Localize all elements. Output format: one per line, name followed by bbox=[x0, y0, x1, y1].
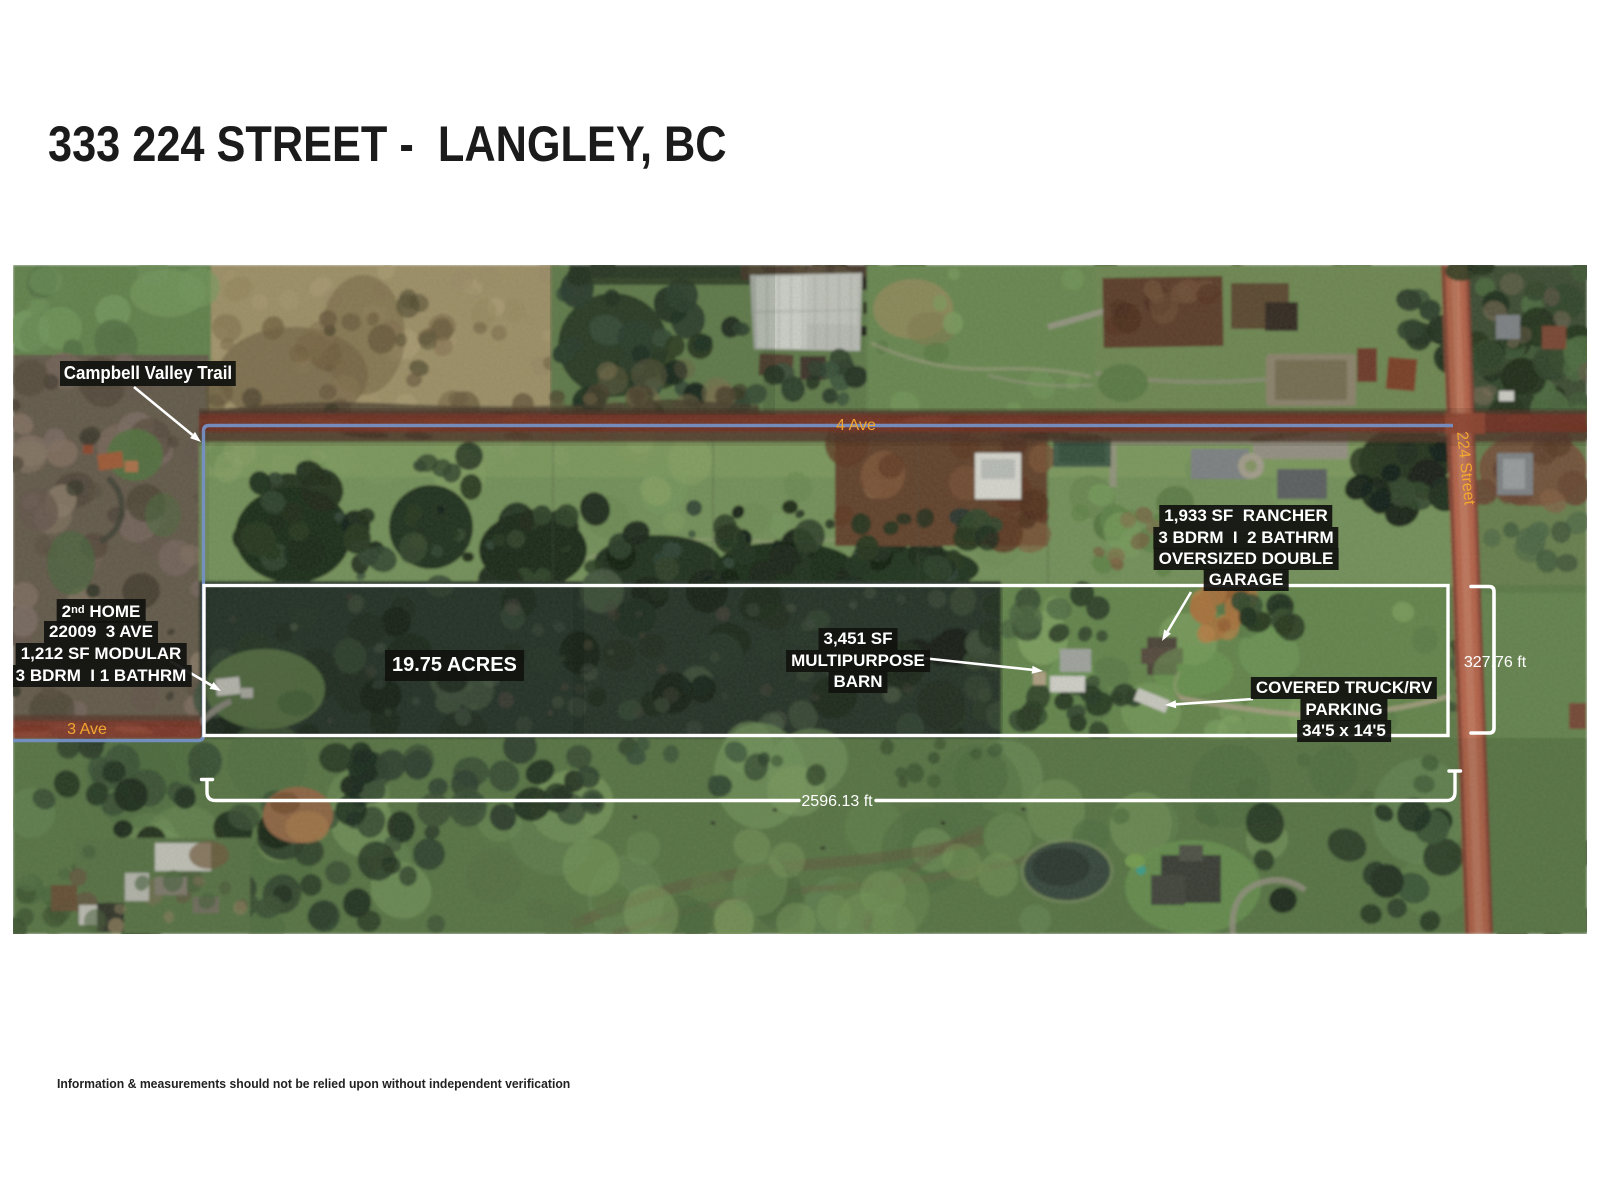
svg-text:327.76 ft: 327.76 ft bbox=[1464, 654, 1527, 671]
svg-text:2596.13 ft: 2596.13 ft bbox=[801, 793, 873, 810]
svg-text:3 Ave: 3 Ave bbox=[67, 721, 107, 738]
svg-text:4 Ave: 4 Ave bbox=[836, 417, 876, 434]
